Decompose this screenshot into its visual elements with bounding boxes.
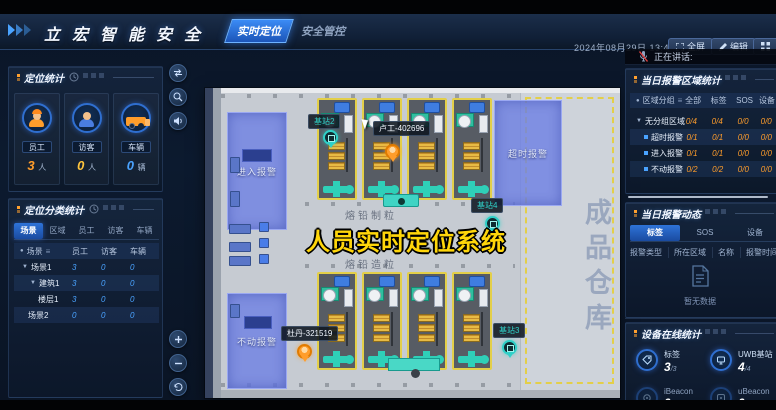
- aisle-machine: [383, 194, 419, 207]
- row-name: 超时报警: [651, 132, 683, 143]
- reset-view-button[interactable]: [169, 378, 187, 396]
- title-decor-dashes: [83, 73, 105, 78]
- minus-icon: [174, 359, 183, 368]
- menu-chevrons-icon[interactable]: [8, 24, 31, 36]
- map-left-walkway: [213, 88, 221, 398]
- title-mark: [634, 210, 637, 217]
- row-name: 场景1: [31, 262, 51, 273]
- zoom-out-button[interactable]: [169, 354, 187, 372]
- cart: [229, 242, 251, 252]
- employee-count-unit: 人: [38, 163, 46, 172]
- tab-safety-control[interactable]: 安全管控: [293, 19, 353, 43]
- machine-unit: [452, 98, 492, 200]
- col-tag: 标签: [711, 95, 736, 106]
- table-row[interactable]: ▼无分组区域 0/40/40/00/0: [630, 113, 776, 129]
- table-row[interactable]: 不动报警 0/20/20/00/0: [630, 161, 776, 177]
- feed-tab-sos[interactable]: SOS: [680, 225, 730, 241]
- cart: [230, 304, 240, 318]
- table-row[interactable]: 超时报警 0/10/10/00/0: [630, 129, 776, 145]
- classify-tab-vehicle[interactable]: 车辆: [130, 223, 159, 239]
- map-top-wall: [205, 88, 620, 93]
- device-label: UWB基站: [738, 349, 773, 360]
- empty-state-text: 暂无数据: [626, 296, 774, 307]
- tag-worker-dudan[interactable]: 杜丹-321519: [281, 326, 338, 341]
- col-name: 名称: [718, 247, 741, 258]
- col-employee: 员工: [72, 246, 101, 257]
- cart: [230, 157, 240, 173]
- table-row[interactable]: 场景2 000: [14, 307, 159, 323]
- title-decor-line: [755, 73, 774, 80]
- machine-unit: [362, 272, 402, 370]
- top-black-strip: [0, 0, 776, 14]
- tag-device-icon: [636, 349, 658, 371]
- vehicle-count-unit: 辆: [138, 163, 146, 172]
- col-visitor: 访客: [101, 246, 130, 257]
- stat-cards: 员工 3 人 访客 0 人 车辆 0 辆: [14, 93, 159, 185]
- table-row[interactable]: ▼建筑1 300: [14, 275, 159, 291]
- map-tools: [167, 64, 189, 130]
- zone-still-label: 不动报警: [237, 335, 277, 348]
- worker-icon: [29, 112, 45, 127]
- row-name: 场景2: [28, 310, 48, 321]
- sound-button[interactable]: [169, 112, 187, 130]
- vehicle-ring: [121, 103, 151, 133]
- row-name: 进入报警: [651, 148, 683, 159]
- map-zoom-tools: [167, 330, 189, 410]
- panel-alarm-feed-title: 当日报警动态: [641, 206, 701, 221]
- panel-separator: [625, 318, 776, 319]
- panel-device-title: 设备在线统计: [641, 326, 701, 341]
- classify-tab-area[interactable]: 区域: [43, 223, 72, 239]
- header-bar: 立宏智能安全 实时定位 安全管控 2024年08月29日 13:49:34 全屏…: [0, 14, 776, 50]
- truck-icon: [126, 117, 146, 126]
- feed-tab-tag[interactable]: 标签: [630, 225, 680, 241]
- col-sos: SOS: [736, 96, 759, 105]
- reset-icon: [173, 382, 183, 392]
- station3-pin[interactable]: [502, 340, 517, 355]
- device-label: uBeacon: [738, 387, 770, 396]
- panel-alarm-area-title: 当日报警区域统计: [641, 72, 721, 87]
- vehicle-badge: 车辆: [121, 141, 151, 153]
- panel-location-stats-title: 定位统计: [24, 70, 64, 85]
- device-label: 标签: [664, 349, 680, 360]
- classify-tabs: 场景 区域 员工 访客 车辆: [14, 223, 159, 240]
- machine-unit: [317, 272, 357, 370]
- title-mark: [17, 206, 20, 213]
- device-item-tag: 标签 3/3: [636, 349, 680, 374]
- stat-card-vehicle: 车辆 0 辆: [113, 93, 159, 185]
- alarm-feed-table-header: 报警类型 所在区域 名称 报警时间 操作: [630, 245, 776, 259]
- zone-timeout-alarm[interactable]: 超时报警: [494, 100, 562, 206]
- device-label: iBeacon: [664, 387, 693, 396]
- alarm-feed-tabs: 标签 SOS 设备: [630, 225, 776, 242]
- panel-location-stats: 定位统计 员工 3 人 访客 0 人: [8, 66, 163, 192]
- stat-card-visitor: 访客 0 人: [64, 93, 110, 185]
- panel-classify-header: 定位分类统计: [9, 199, 162, 219]
- empty-document-icon: [687, 263, 713, 289]
- title-decor-dashes: [103, 205, 125, 210]
- warehouse-label: 成品仓库: [577, 198, 616, 338]
- machine-unit: [407, 98, 447, 200]
- tab-realtime-location[interactable]: 实时定位: [224, 19, 294, 43]
- col-area-group: ●区域分组≡: [630, 95, 685, 106]
- title-mark: [634, 330, 637, 337]
- classify-tab-employee[interactable]: 员工: [72, 223, 101, 239]
- row-name: 不动报警: [651, 164, 683, 175]
- title-decor-dashes: [725, 75, 747, 80]
- panel-alarm-area-stats: 当日报警区域统计 ●区域分组≡ 全部 标签 SOS 设备 ▼无分组区域 0/40…: [625, 68, 776, 194]
- cart: [229, 224, 251, 234]
- empty-state: 暂无数据: [626, 263, 774, 307]
- layers-swap-button[interactable]: [169, 64, 187, 82]
- visitor-icon: [79, 112, 95, 127]
- zone-timeout-label: 超时报警: [508, 147, 548, 160]
- swap-icon: [173, 69, 183, 77]
- employee-count-value: 3: [27, 158, 34, 173]
- vehicle-count: 0 辆: [114, 158, 158, 173]
- stat-card-employee: 员工 3 人: [14, 93, 60, 185]
- search-button[interactable]: [169, 88, 187, 106]
- station2-pin[interactable]: [323, 130, 338, 145]
- title-decor-line: [735, 207, 774, 214]
- area-label-top: 熔铅制粒: [345, 207, 397, 222]
- alarm-area-table-header: ●区域分组≡ 全部 标签 SOS 设备: [630, 93, 776, 108]
- title-mark: [634, 76, 637, 83]
- table-row[interactable]: 进入报警 0/10/10/00/0: [630, 145, 776, 161]
- zone-entry-alarm[interactable]: 进入报警: [227, 112, 287, 230]
- refresh-clock-icon[interactable]: [69, 72, 79, 82]
- pallet-box: [259, 254, 269, 264]
- zoom-in-button[interactable]: [169, 330, 187, 348]
- col-alarm-type: 报警类型: [630, 247, 669, 258]
- uwb-station-icon: [710, 349, 732, 371]
- visitor-count: 0 人: [65, 158, 109, 173]
- rack: [244, 316, 272, 329]
- tab-safety-label: 安全管控: [301, 23, 345, 39]
- col-time: 报警时间: [746, 247, 776, 258]
- voice-status-bar: 正在讲话:: [625, 49, 776, 65]
- table-row[interactable]: 楼层1 300: [14, 291, 159, 307]
- tab-realtime-label: 实时定位: [237, 23, 281, 39]
- panel-alarm-area-header: 当日报警区域统计: [626, 69, 776, 89]
- visitor-badge: 访客: [72, 141, 102, 153]
- col-vehicle: 车辆: [130, 246, 159, 257]
- microphone-muted-icon: [639, 51, 648, 62]
- cart: [230, 191, 240, 207]
- zone-still-alarm[interactable]: 不动报警: [227, 293, 287, 389]
- pallet-box: [259, 222, 269, 232]
- col-area: 所在区域: [674, 247, 713, 258]
- panel-alarm-feed: 当日报警动态 标签 SOS 设备 报警类型 所在区域 名称 报警时间 操作 暂无…: [625, 202, 776, 318]
- panel-alarm-feed-header: 当日报警动态: [626, 203, 776, 223]
- panel-location-stats-header: 定位统计: [9, 67, 162, 87]
- tag-station3[interactable]: 基站3: [493, 323, 525, 338]
- row-name: 无分组区域: [645, 116, 685, 127]
- visitor-count-unit: 人: [88, 163, 96, 172]
- col-device: 设备: [759, 95, 776, 106]
- app-root: 立宏智能安全 实时定位 安全管控 2024年08月29日 13:49:34 全屏…: [0, 0, 776, 410]
- device-value: 4/4: [738, 360, 773, 374]
- area-label-bottom: 熔铅造粒: [345, 256, 397, 271]
- title-decor-line: [735, 327, 774, 334]
- title-decor-line: [113, 71, 154, 78]
- vehicle-count-value: 0: [127, 158, 134, 173]
- visitor-ring: [72, 103, 102, 133]
- title-mark: [17, 74, 20, 81]
- tag-worker-luogong[interactable]: 卢工-402696: [373, 121, 430, 136]
- worker-dudan-pin[interactable]: [297, 344, 312, 359]
- worker-luogong-pin[interactable]: [385, 144, 400, 159]
- zone-entry-label: 进入报警: [237, 165, 277, 178]
- bottom-black-strip: [0, 400, 776, 410]
- speaker-icon: [173, 116, 183, 126]
- table-row[interactable]: ▼场景1 300: [14, 259, 159, 275]
- classify-table-header: ●场景≡ 员工 访客 车辆: [14, 243, 159, 259]
- title-decor-dashes: [705, 329, 727, 334]
- classify-tab-visitor[interactable]: 访客: [101, 223, 130, 239]
- search-icon: [173, 92, 183, 102]
- pallet-box: [259, 238, 269, 248]
- panel-classify-title: 定位分类统计: [24, 202, 84, 217]
- plus-icon: [174, 335, 183, 344]
- row-name: 建筑1: [39, 278, 59, 289]
- visitor-count-value: 0: [77, 158, 84, 173]
- device-value: 3/3: [664, 360, 680, 374]
- title-decor-dashes: [705, 209, 727, 214]
- cart: [229, 256, 251, 266]
- row-name: 楼层1: [38, 294, 58, 305]
- overlay-system-title: 人员实时定位系统: [306, 222, 506, 257]
- pillar-row: [305, 264, 515, 268]
- panel-classify-stats: 定位分类统计 场景 区域 员工 访客 车辆 ●场景≡ 员工 访客 车辆 ▼场景1…: [8, 198, 163, 398]
- horizontal-scrollbar[interactable]: [628, 196, 768, 198]
- app-logo: 立宏智能安全: [44, 21, 212, 45]
- col-all: 全部: [685, 95, 710, 106]
- machine-unit: [407, 272, 447, 370]
- employee-ring: [22, 103, 52, 133]
- machine-unit: [452, 272, 492, 370]
- map-left-wall: [205, 88, 213, 398]
- employee-badge: 员工: [22, 141, 52, 153]
- title-decor-line: [133, 203, 154, 210]
- refresh-clock-icon[interactable]: [89, 204, 99, 214]
- panel-device-stats: 设备在线统计 标签 3/3 UWB基站 4/4 iBeacon 0/0: [625, 322, 776, 410]
- col-scene: ●场景≡: [14, 246, 72, 257]
- voice-status-label: 正在讲话:: [654, 50, 693, 63]
- feed-tab-device[interactable]: 设备: [730, 225, 776, 241]
- conveyor-unit: [388, 358, 440, 371]
- tag-station4[interactable]: 基站4: [471, 198, 503, 213]
- tag-station2[interactable]: 基站2: [308, 114, 340, 129]
- rack: [242, 149, 272, 162]
- panel-device-header: 设备在线统计: [626, 323, 776, 343]
- device-item-uwb: UWB基站 4/4: [710, 349, 773, 374]
- classify-tab-scene[interactable]: 场景: [14, 223, 43, 239]
- employee-count: 3 人: [15, 158, 59, 173]
- map-bottom-wall: [205, 390, 620, 398]
